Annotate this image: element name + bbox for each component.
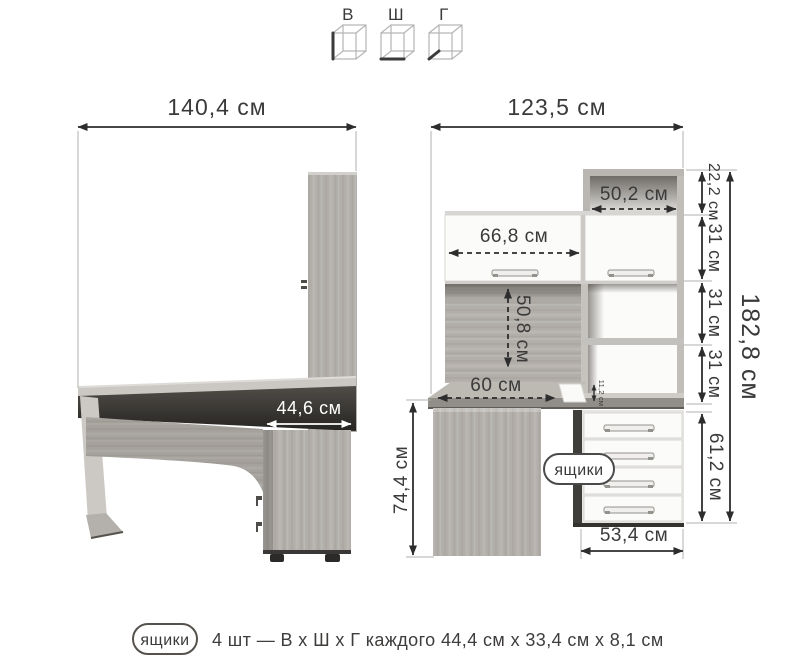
drawer-handle (604, 507, 654, 514)
caption-badge-label: ящики (140, 632, 189, 649)
drawers-width-label: 53,4 см (600, 525, 668, 546)
drawers-callout-label: ящики (554, 462, 603, 479)
desk-front-panel (433, 408, 541, 556)
top-section-height-label: 22,2 см (705, 163, 722, 221)
cube-depth-icon (429, 25, 462, 59)
front-width-label: 123,5 см (507, 94, 606, 120)
furniture-dimension-diagram: В Ш Г (0, 0, 800, 667)
top-shelf-width-label: 50,2 см (600, 184, 668, 205)
desk-side-panel-shade (86, 417, 263, 492)
front-view: 123,5 см 50,2 см 66,8 см 50,8 см 60 см 1… (391, 94, 764, 559)
hutch-door-divider (581, 215, 585, 281)
drawer-unit-foot (270, 554, 284, 562)
side-view: 140,4 см 44,6 см (78, 94, 357, 562)
desktop-front-edge (428, 398, 684, 408)
door-handle-edge-mark (301, 286, 307, 289)
drawer-handle-side-mark (256, 522, 262, 532)
desktop-riser (559, 384, 586, 402)
legend-label-width: Ш (388, 5, 404, 24)
door-handle-edge-mark (301, 280, 307, 283)
drawer-unit-bottom-edge (263, 550, 351, 554)
drawer-unit-foot (325, 554, 340, 562)
side-width-label: 140,4 см (167, 94, 266, 120)
legend-label-height: В (342, 5, 354, 24)
board-under-doors (445, 281, 684, 284)
drawer-handle (604, 425, 654, 432)
shelf-height-label: 31 см (705, 289, 725, 338)
cube-width-icon (381, 25, 414, 59)
drawer-handle (604, 481, 654, 488)
door-handle (492, 270, 538, 277)
drawers-height-label: 61,2 см (705, 433, 726, 501)
door-width-label: 66,8 см (480, 226, 548, 247)
shelf-height-label: 31 см (705, 224, 725, 273)
back-panel-height-label: 50,8 см (512, 295, 533, 363)
caption-text: 4 шт — В х Ш х Г каждого 44,4 см х 33,4 … (212, 630, 664, 650)
shelf-height-label: 31 см (705, 350, 725, 399)
legend-label-depth: Г (439, 5, 449, 24)
desk-front-panel-highlight (433, 408, 541, 412)
total-height-label: 182,8 см (736, 293, 764, 400)
cube-height-icon (333, 25, 366, 59)
drawer-handle-side-mark (256, 496, 262, 506)
door-handle (608, 270, 654, 277)
drawer-handle (604, 453, 654, 460)
shelf-board (583, 338, 684, 345)
desk-height-label: 74,4 см (391, 446, 412, 514)
hutch-upright-top-edge (308, 172, 357, 175)
caption: ящики 4 шт — В х Ш х Г каждого 44,4 см х… (133, 624, 664, 654)
unit-depth-label: 44,6 см (277, 398, 342, 418)
column-right-board (677, 176, 684, 404)
drawer-unit-side-shade (263, 430, 273, 554)
drawer-unit-side (263, 430, 351, 554)
desk-leg-foot (86, 513, 123, 538)
open-shelf-upper-side-shade (588, 284, 604, 338)
hutch-top-board (445, 211, 684, 215)
legend: В Ш Г (333, 5, 462, 59)
diagram-canvas: В Ш Г (0, 0, 800, 667)
riser-height-label: 11,2 см (597, 380, 606, 406)
desktop-depth-label: 60 см (470, 375, 521, 396)
